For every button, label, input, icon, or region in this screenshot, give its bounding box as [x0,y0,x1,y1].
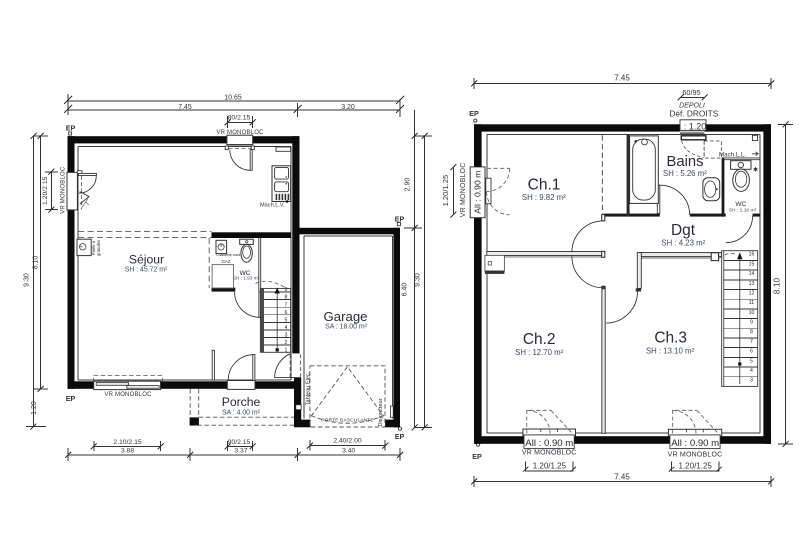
svg-text:All : 0.90 m: All : 0.90 m [473,171,483,214]
svg-text:4: 4 [750,368,753,374]
svg-text:WC: WC [735,201,746,208]
svg-text:: 1.20: : 1.20 [684,121,707,131]
svg-text:Tableau Elec.: Tableau Elec. [305,371,311,405]
svg-text:SH : 5.26 m²: SH : 5.26 m² [663,169,707,178]
svg-text:Garage: Garage [324,309,368,324]
svg-text:1.20/1.25: 1.20/1.25 [441,175,450,207]
svg-text:16: 16 [749,251,755,257]
svg-text:1.20/1.25: 1.20/1.25 [679,461,713,470]
svg-text:90/2.15: 90/2.15 [228,439,251,446]
svg-text:10: 10 [749,310,755,316]
svg-text:EP: EP [66,124,76,133]
svg-text:2.40/2.00: 2.40/2.00 [333,437,362,444]
svg-text:EP: EP [472,452,482,461]
svg-text:SH : 1.93 m²: SH : 1.93 m² [233,276,260,281]
svg-text:9.30: 9.30 [23,273,30,287]
svg-text:3: 3 [750,378,753,384]
svg-text:EP: EP [66,394,76,403]
svg-text:1.20: 1.20 [31,401,38,415]
svg-text:3.37: 3.37 [234,448,247,455]
svg-text:Disjoncteur: Disjoncteur [378,398,384,426]
svg-text:12: 12 [749,291,755,297]
svg-text:9: 9 [750,320,753,326]
svg-text:15: 15 [749,261,755,267]
svg-text:EP: EP [469,109,479,118]
svg-text:9.30: 9.30 [415,273,422,287]
svg-text:3.40: 3.40 [342,448,355,455]
svg-text:SH : 4.23 m²: SH : 4.23 m² [661,239,705,248]
svg-text:5: 5 [750,358,753,364]
svg-text:1.20/1.25: 1.20/1.25 [533,461,567,470]
svg-text:1: 1 [284,348,287,354]
svg-text:SH : 1.16 m²: SH : 1.16 m² [729,207,757,213]
svg-text:7.45: 7.45 [614,74,630,83]
svg-text:7: 7 [284,302,287,308]
svg-text:VR MONOBLOC: VR MONOBLOC [460,163,467,218]
svg-text:Ch.1: Ch.1 [528,177,561,194]
svg-text:10.65: 10.65 [224,95,242,102]
svg-text:SH : 13.10 m²: SH : 13.10 m² [646,347,695,356]
svg-text:Séjour: Séjour [129,252,164,266]
svg-text:8.10: 8.10 [32,256,39,270]
svg-text:Ch.3: Ch.3 [654,330,687,347]
svg-text:8: 8 [284,295,287,301]
svg-text:3: 3 [284,333,287,339]
svg-text:14: 14 [749,271,755,277]
svg-text:PORTE BASCULANTE: PORTE BASCULANTE [321,417,373,422]
svg-text:1.20/2.15: 1.20/2.15 [42,176,49,205]
svg-text:Dgt: Dgt [671,222,696,239]
svg-text:2: 2 [284,340,287,346]
svg-text:6: 6 [284,310,287,316]
svg-text:Mach.L.L.: Mach.L.L. [719,151,746,158]
svg-text:80/2.15: 80/2.15 [228,115,251,122]
svg-text:Mach.L.V.: Mach.L.V. [260,202,285,208]
svg-text:4: 4 [284,325,287,331]
svg-text:SA : 18.00 m²: SA : 18.00 m² [325,324,367,331]
svg-text:6.40: 6.40 [401,283,408,297]
svg-text:6: 6 [750,349,753,355]
svg-text:7.45: 7.45 [178,104,192,111]
svg-text:7: 7 [750,339,753,345]
svg-text:SH : 12.70 m²: SH : 12.70 m² [515,348,564,357]
svg-text:granules: granules [96,240,101,256]
svg-text:7.45: 7.45 [614,473,630,482]
svg-text:VR MONOBLOC: VR MONOBLOC [104,392,152,398]
svg-text:8.10: 8.10 [772,278,782,295]
svg-text:8: 8 [750,329,753,335]
svg-text:All : 0.90 m: All : 0.90 m [525,438,573,449]
svg-text:11: 11 [749,300,754,306]
svg-text:SH : 45.72 m²: SH : 45.72 m² [125,267,168,274]
svg-text:Ch.2: Ch.2 [523,331,556,348]
svg-text:EP: EP [395,432,405,441]
svg-text:VR MONOBLOC: VR MONOBLOC [668,452,723,459]
svg-text:5: 5 [284,317,287,323]
svg-text:Déf. DROITS: Déf. DROITS [669,108,718,118]
svg-text:3.20: 3.20 [341,104,355,111]
svg-text:Bains: Bains [666,154,703,170]
svg-text:2.10/2.15: 2.10/2.15 [113,439,142,446]
svg-text:VR MONOBLOC: VR MONOBLOC [522,450,577,457]
svg-text:60/95: 60/95 [682,88,700,97]
svg-text:2.90: 2.90 [404,178,411,192]
svg-text:13: 13 [749,281,755,287]
svg-text:9: 9 [284,287,287,293]
svg-text:GAZ: GAZ [221,259,230,264]
svg-text:All : 0.90 m: All : 0.90 m [671,438,719,449]
svg-text:✱: ✱ [753,167,758,174]
svg-text:Porche: Porche [222,395,261,409]
svg-text:SA : 4.00 m²: SA : 4.00 m² [222,410,261,417]
svg-text:VR MONOBLOC: VR MONOBLOC [61,166,67,214]
svg-text:SH : 9.82 m²: SH : 9.82 m² [522,193,566,202]
svg-text:Chaudiere cond.: Chaudiere cond. [216,253,241,257]
svg-text:3.88: 3.88 [121,448,134,455]
